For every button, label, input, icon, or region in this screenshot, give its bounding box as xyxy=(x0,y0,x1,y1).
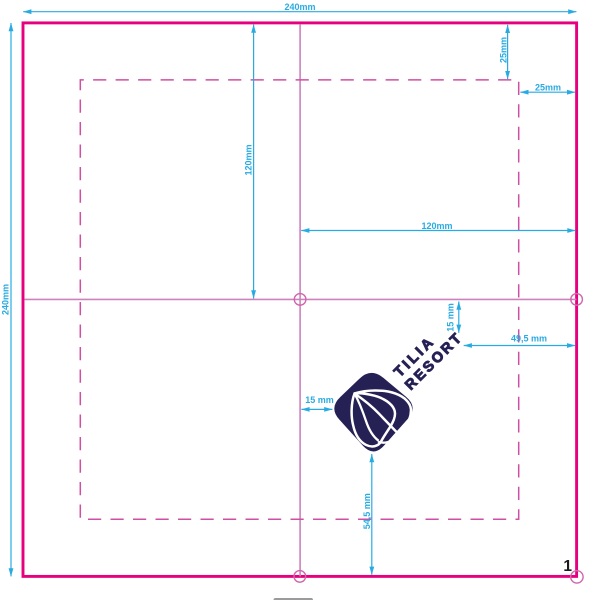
svg-text:25mm: 25mm xyxy=(499,37,509,63)
svg-text:49,5 mm: 49,5 mm xyxy=(511,333,547,343)
svg-text:15 mm: 15 mm xyxy=(446,303,456,332)
svg-text:15 mm: 15 mm xyxy=(305,395,334,405)
svg-text:25mm: 25mm xyxy=(535,83,561,93)
svg-text:120mm: 120mm xyxy=(421,221,452,231)
svg-text:240mm: 240mm xyxy=(284,2,315,12)
svg-text:240mm: 240mm xyxy=(1,284,11,315)
svg-text:1: 1 xyxy=(563,558,572,575)
svg-text:54,5 mm: 54,5 mm xyxy=(362,493,372,529)
svg-text:120mm: 120mm xyxy=(243,144,253,175)
